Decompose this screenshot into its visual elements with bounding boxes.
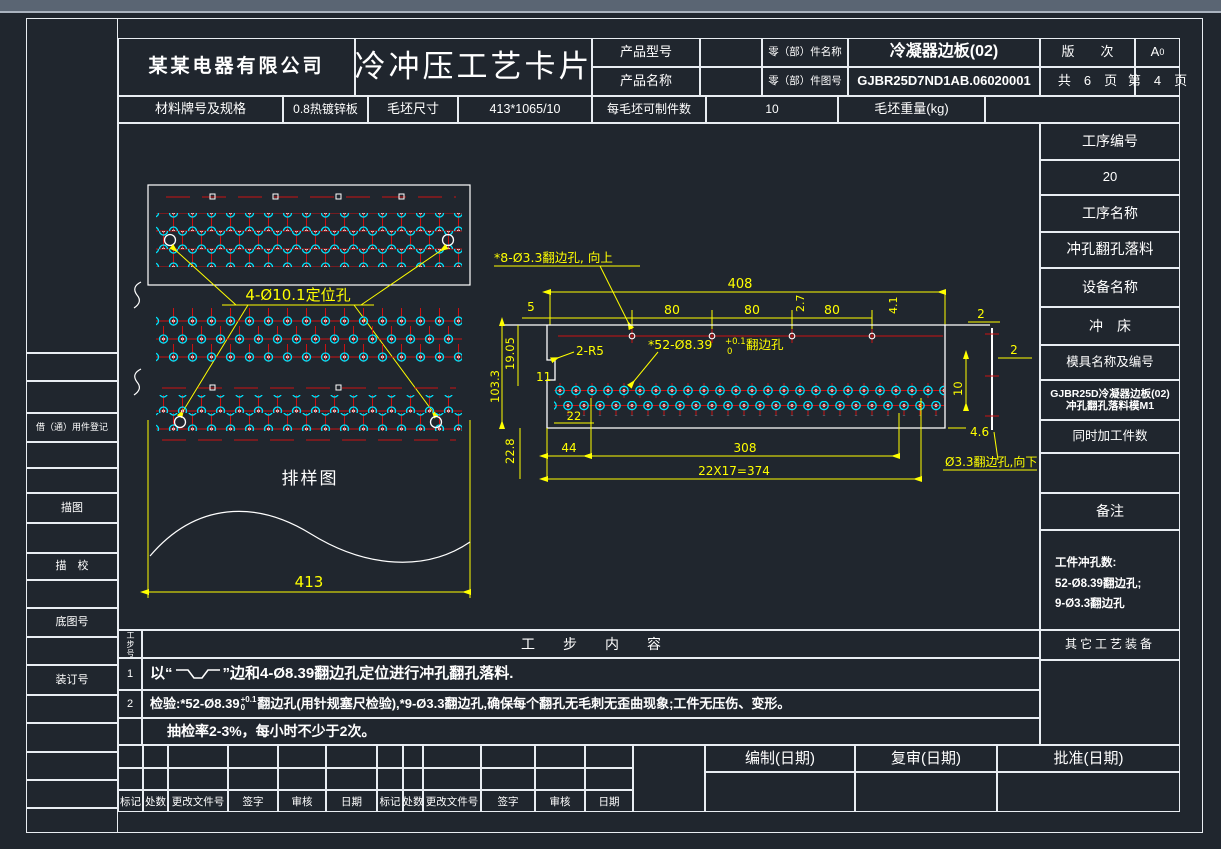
dim-2r5: 2-R5 [576, 344, 604, 358]
sidebar-binding-no-label: 装订号 [26, 665, 118, 695]
blank-weight-label: 毛坯重量(kg) [838, 96, 985, 123]
dim-2-b: 2 [1010, 343, 1018, 357]
window-title-bar [0, 0, 1221, 11]
note-main-holes-tol-sup: +0.1 [725, 337, 746, 347]
mold-label: 模具名称及编号 [1040, 345, 1180, 380]
mold-value: GJBR25D冷凝器边板(02) 冲孔翻孔落料模M1 [1040, 380, 1180, 420]
approve-label: 批准(日期) [997, 745, 1180, 772]
dim-413: 413 [295, 573, 324, 591]
hole-row [156, 395, 462, 413]
break-mark [134, 282, 141, 308]
review-value [855, 772, 997, 812]
other-tooling-label: 其它工艺装备 [1040, 630, 1180, 660]
step-row1-text: 以“ ”边和4-Ø8.39翻边孔定位进行冲孔翻孔落料. [142, 658, 1040, 690]
cad-process-card-sheet: 借（通）用件登记 描图 描 校 底图号 装订号 某某电器有限公司 冷冲压工艺卡片… [0, 0, 1221, 849]
dim-44: 44 [561, 441, 576, 455]
version-label: 版 次 [1040, 38, 1135, 67]
dim-374: 22X17=374 [698, 464, 770, 478]
blank-weight-value [985, 96, 1180, 123]
company-name: 某某电器有限公司 [118, 38, 355, 96]
sidebar-box [26, 637, 118, 665]
note-flange-holes-up: *8-Ø3.3翻边孔, 向上 [494, 250, 613, 265]
step-row3-text: 抽检率2-3%，每小时不少于2次。 [142, 718, 1040, 745]
part-name-value: 冷凝器边板(02) [848, 38, 1040, 67]
blank-size-label: 毛坯尺寸 [368, 96, 458, 123]
hole-row [156, 413, 462, 431]
sidebar-trace-label: 描图 [26, 493, 118, 523]
sidebar-box [26, 780, 118, 808]
step-row1-suffix: ”边和4-Ø8.39翻边孔定位进行冲孔翻孔落料. [223, 665, 514, 682]
sidebar-box [26, 723, 118, 752]
rev-sign-label: 签字 [481, 790, 535, 812]
sidebar-box [26, 523, 118, 553]
process-name-value: 冲孔翻孔落料 [1040, 232, 1180, 268]
step-row2-seg1: 检验:*52-Ø8.39 [150, 697, 240, 712]
material-grade-value: 0.8热镀锌板 [283, 96, 368, 123]
sidebar-box [26, 381, 118, 413]
remark-block: 工件冲孔数: 52-Ø8.39翻边孔; 9-Ø3.3翻边孔 [1040, 530, 1180, 630]
strip-layout-drawing: 4-Ø10.1定位孔 排样图 413 [126, 150, 496, 620]
positioning-hole-note: 4-Ø10.1定位孔 [245, 286, 350, 304]
hole-row [156, 326, 462, 344]
rev-date-label: 日期 [585, 790, 633, 812]
version-value: A0 [1135, 38, 1180, 67]
v-notch-profile-icon [175, 667, 221, 681]
review-label: 复审(日期) [855, 745, 997, 772]
current-page: 第 4 页 [1135, 67, 1180, 96]
remark-label: 备注 [1040, 493, 1180, 530]
sidebar-box [26, 580, 118, 608]
step-row3-no [118, 718, 142, 745]
step-content-header: 工 步 内 容 [142, 630, 1040, 658]
other-tooling-value [1040, 660, 1180, 745]
rev-mark-label: 标记 [377, 790, 403, 812]
rev-count-label: 处数 [143, 790, 168, 812]
equipment-value: 冲 床 [1040, 307, 1180, 345]
break-mark [134, 369, 141, 395]
hole-row [156, 344, 462, 362]
rev-audit-label: 审核 [535, 790, 585, 812]
process-no-label: 工序编号 [1040, 123, 1180, 160]
prepare-label: 编制(日期) [705, 745, 855, 772]
version-main: A [1151, 45, 1160, 60]
note-main-holes-suffix: 翻边孔 [746, 337, 784, 352]
material-grade-label: 材料牌号及规格 [118, 96, 283, 123]
revision-table: 标记 处数 更改文件号 签字 审核 日期 标记 处数 更改文件号 签字 审核 日… [118, 745, 633, 812]
sidebar-trace-check-label: 描 校 [26, 553, 118, 580]
step-row2-text: 检验:*52-Ø8.39 +0.1 0 翻边孔(用针规塞尺检验),*9-Ø3.3… [142, 690, 1040, 718]
step-row2-tolerance: +0.1 0 [241, 696, 257, 712]
dim-4-1: 4.1 [887, 297, 900, 315]
sidebar-box [26, 353, 118, 381]
step-row1-no: 1 [118, 658, 142, 690]
sidebar-box [26, 468, 118, 493]
total-pages: 共 6 页 [1040, 67, 1135, 96]
prepare-value [705, 772, 855, 812]
dim-103-3: 103.3 [488, 370, 502, 403]
dim-22-8: 22.8 [503, 438, 517, 464]
layout-title: 排样图 [282, 469, 339, 489]
rev-docno-label: 更改文件号 [423, 790, 481, 812]
product-model-value [700, 38, 762, 67]
simultaneous-label: 同时加工件数 [1040, 420, 1180, 453]
dim-308: 308 [734, 441, 757, 455]
sidebar-box [26, 752, 118, 780]
blank-size-value: 413*1065/10 [458, 96, 592, 123]
step-no-col-header: 工步号 [118, 630, 142, 658]
rev-mark-label: 标记 [118, 790, 143, 812]
hole-row [156, 308, 462, 326]
dim-5: 5 [527, 300, 535, 314]
dim-2-7: 2.7 [794, 295, 807, 313]
hole-row [156, 213, 462, 231]
product-model-label: 产品型号 [592, 38, 700, 67]
note-hole-down: Ø3.3翻边孔,向下 [945, 454, 1037, 469]
hole-row [554, 383, 944, 398]
sidebar-box-top [26, 18, 118, 353]
process-no-value: 20 [1040, 160, 1180, 195]
remark-line3: 9-Ø3.3翻边孔 [1055, 594, 1125, 615]
dim-80-1: 80 [664, 302, 680, 317]
parts-per-blank-value: 10 [706, 96, 838, 123]
mold-value-line1: GJBR25D冷凝器边板(02) [1050, 388, 1170, 400]
step-row2-seg2: 翻边孔(用针规塞尺检验),*9-Ø3.3翻边孔,确保每个翻孔无毛刺无歪曲现象;工… [257, 697, 790, 712]
rev-docno-label: 更改文件号 [168, 790, 228, 812]
part-name-label: 零（部）件名称 [762, 38, 848, 67]
remark-line1: 工件冲孔数: [1055, 553, 1116, 574]
sidebar-borrow-label: 借（通）用件登记 [26, 413, 118, 442]
product-name-value [700, 67, 762, 96]
approve-value [997, 772, 1180, 812]
step-row2-no: 2 [118, 690, 142, 718]
dim-408: 408 [728, 277, 753, 292]
note-main-holes: *52-Ø8.39 [648, 337, 712, 352]
rev-sign-label: 签字 [228, 790, 278, 812]
remark-line2: 52-Ø8.39翻边孔; [1055, 574, 1141, 595]
rev-count-label: 处数 [403, 790, 423, 812]
dim-80-2: 80 [744, 302, 760, 317]
part-no-value: GJBR25D7ND1AB.06020001 [848, 67, 1040, 96]
product-name-label: 产品名称 [592, 67, 700, 96]
dim-22: 22 [567, 409, 582, 423]
dim-10: 10 [951, 381, 965, 396]
hole-row [554, 401, 944, 416]
dim-11: 11 [536, 370, 551, 384]
dim-80-3: 80 [824, 302, 840, 317]
rev-date-label: 日期 [326, 790, 377, 812]
sidebar-box [26, 695, 118, 723]
part-detail-drawing: *8-Ø3.3翻边孔, 向上 408 5 80 80 80 2.7 4.1 [488, 248, 1040, 493]
title-bar-edge [0, 11, 1221, 13]
sidebar-base-no-label: 底图号 [26, 608, 118, 637]
sidebar-box [26, 808, 118, 833]
rev-audit-label: 审核 [278, 790, 326, 812]
dim-2-a: 2 [977, 307, 985, 321]
dim-4-6: 4.6 [970, 425, 989, 439]
hole-row [156, 231, 462, 249]
process-name-label: 工序名称 [1040, 195, 1180, 232]
break-wave [150, 511, 470, 562]
part-no-label: 零（部）件图号 [762, 67, 848, 96]
step-row1-prefix: 以“ [150, 665, 173, 682]
hole-row [156, 249, 462, 267]
sidebar-box [26, 442, 118, 468]
document-title: 冷冲压工艺卡片 [355, 38, 592, 96]
dim-19-05: 19.05 [503, 337, 517, 370]
parts-per-blank-label: 每毛坯可制件数 [592, 96, 706, 123]
simultaneous-value [1040, 453, 1180, 493]
note-main-holes-tol-sub: 0 [727, 347, 732, 357]
mold-value-line2: 冲孔翻孔落料模M1 [1066, 400, 1154, 412]
version-sub: 0 [1159, 47, 1164, 57]
equipment-label: 设备名称 [1040, 268, 1180, 307]
bottom-spacer-cell [633, 745, 705, 812]
